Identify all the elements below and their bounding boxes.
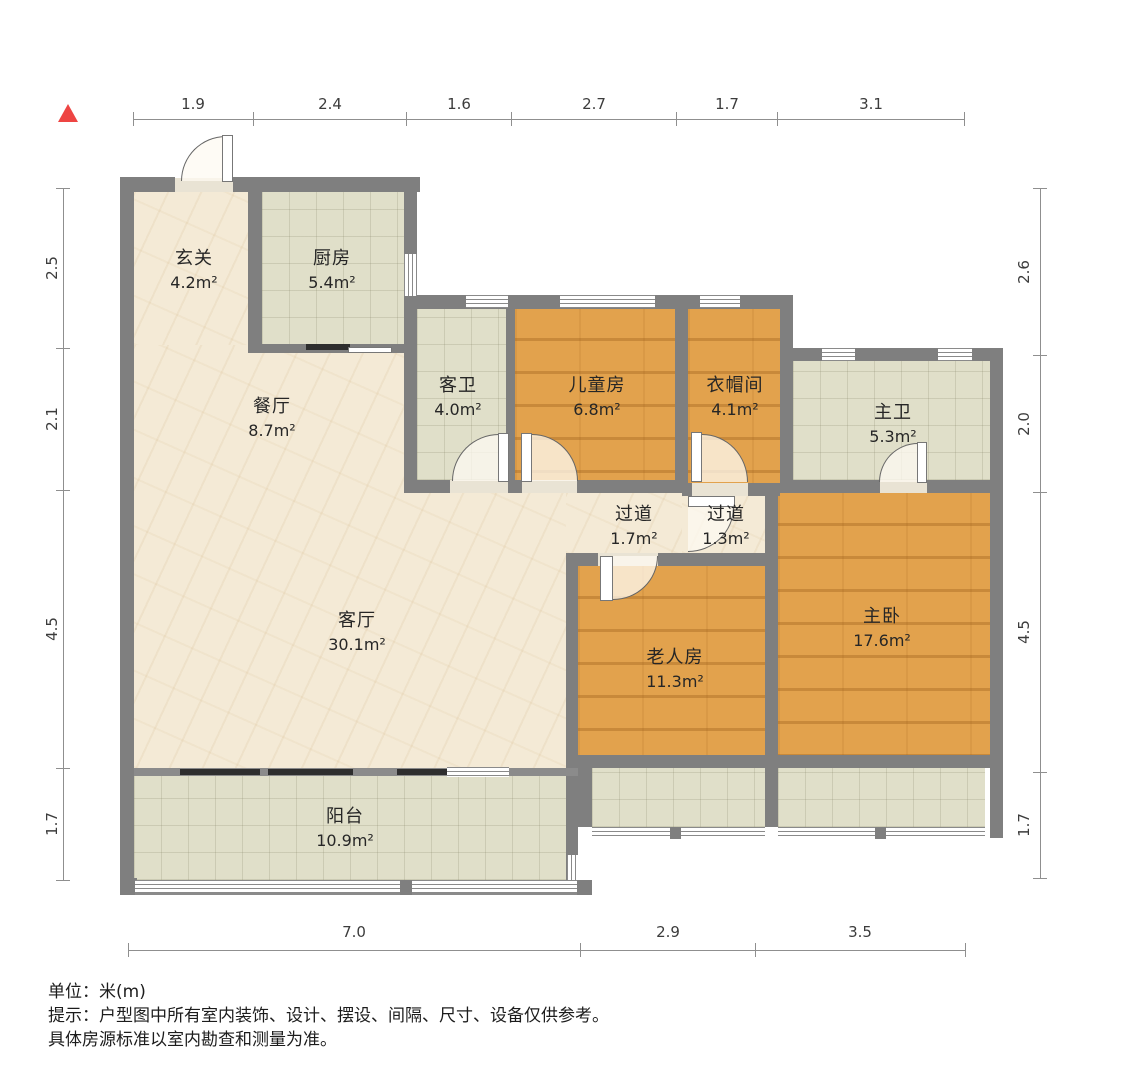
window xyxy=(822,348,855,361)
dim-label-left-4: 1.7 xyxy=(43,812,61,836)
wall xyxy=(682,483,692,496)
room-name: 餐厅 xyxy=(248,392,295,418)
dim-label-top-3: 1.6 xyxy=(447,95,471,113)
railing xyxy=(778,827,875,839)
floor-ledge-right xyxy=(778,768,985,827)
wall xyxy=(233,177,420,192)
dim-tick xyxy=(965,943,966,957)
dim-label-left-2: 2.1 xyxy=(43,407,61,431)
room-label-dining: 餐厅 8.7m² xyxy=(248,392,295,440)
dim-tick xyxy=(1033,355,1047,356)
window xyxy=(466,295,508,308)
dim-label-top-1: 1.9 xyxy=(181,95,205,113)
door-leaf-entry xyxy=(222,135,233,182)
wall xyxy=(577,480,682,493)
dim-tick xyxy=(1033,188,1047,189)
room-name: 厨房 xyxy=(308,244,355,270)
room-area: 10.9m² xyxy=(316,831,374,850)
balcony-railing xyxy=(135,880,400,895)
wall xyxy=(927,480,1003,493)
dim-tick xyxy=(755,943,756,957)
wall xyxy=(780,480,880,493)
room-name: 过道 xyxy=(702,500,749,526)
room-label-corridor-a: 过道 1.7m² xyxy=(610,500,657,548)
wall xyxy=(120,177,134,895)
dim-label-top-2: 2.4 xyxy=(318,95,342,113)
dim-label-top-5: 1.7 xyxy=(715,95,739,113)
wall xyxy=(658,553,778,566)
wall xyxy=(875,827,886,839)
dim-tick xyxy=(128,943,129,957)
dim-label-bottom-1: 7.0 xyxy=(342,923,366,941)
wall xyxy=(765,768,778,827)
room-area: 5.4m² xyxy=(308,273,355,292)
dim-tick xyxy=(133,112,134,126)
room-area: 6.8m² xyxy=(569,400,626,419)
room-name: 过道 xyxy=(610,500,657,526)
room-name: 主卫 xyxy=(869,398,916,424)
dim-tick xyxy=(56,768,70,769)
room-name: 老人房 xyxy=(646,643,704,669)
dim-tick xyxy=(56,188,70,189)
wall xyxy=(577,880,592,895)
dimension-line-right xyxy=(1040,188,1041,878)
dim-tick xyxy=(676,112,677,126)
wall xyxy=(578,768,592,827)
sliding-door-panel xyxy=(397,769,447,775)
dim-tick xyxy=(1033,772,1047,773)
dim-label-top-4: 2.7 xyxy=(582,95,606,113)
room-name: 阳台 xyxy=(316,802,374,828)
door-leaf-cloakroom xyxy=(691,432,702,482)
dim-tick xyxy=(1033,492,1047,493)
wall xyxy=(404,480,450,493)
window xyxy=(700,295,740,308)
room-name: 衣帽间 xyxy=(707,371,764,397)
dim-label-bottom-2: 2.9 xyxy=(656,923,680,941)
dim-tick xyxy=(1033,878,1047,879)
sliding-door-panel xyxy=(348,347,392,353)
wall xyxy=(508,480,522,493)
dim-label-right-3: 4.5 xyxy=(1015,620,1033,644)
dim-tick xyxy=(511,112,512,126)
dim-tick xyxy=(253,112,254,126)
footer-unit: 单位：米(m) xyxy=(48,980,609,1004)
room-name: 客厅 xyxy=(328,606,386,632)
wall xyxy=(675,308,688,483)
sliding-door-panel xyxy=(306,344,350,350)
room-label-master-bedroom: 主卧 17.6m² xyxy=(853,602,911,650)
room-label-entry-hall: 玄关 4.2m² xyxy=(170,244,217,292)
railing xyxy=(681,827,765,839)
sliding-door-panel xyxy=(268,769,353,775)
dim-label-right-2: 2.0 xyxy=(1015,412,1033,436)
floor-ledge-left xyxy=(592,768,765,827)
room-label-cloakroom: 衣帽间 4.1m² xyxy=(707,371,764,419)
room-label-elder-room: 老人房 11.3m² xyxy=(646,643,704,691)
balcony-railing xyxy=(412,880,577,895)
wall xyxy=(400,880,412,895)
window xyxy=(938,348,972,361)
room-area: 1.7m² xyxy=(610,529,657,548)
door-leaf-elder-room xyxy=(600,556,613,601)
dim-tick xyxy=(964,112,965,126)
room-label-master-bath: 主卫 5.3m² xyxy=(869,398,916,446)
window xyxy=(560,295,655,308)
dim-label-left-1: 2.5 xyxy=(43,256,61,280)
room-name: 主卧 xyxy=(853,602,911,628)
dimension-line-top xyxy=(133,119,964,120)
room-name: 玄关 xyxy=(170,244,217,270)
footer-notes: 单位：米(m) 提示：户型图中所有室内装饰、设计、摆设、间隔、尺寸、设备仅供参考… xyxy=(48,980,609,1052)
dim-tick xyxy=(580,943,581,957)
room-area: 17.6m² xyxy=(853,631,911,650)
room-name: 儿童房 xyxy=(569,371,626,397)
wall xyxy=(404,192,417,480)
door-leaf-master-bath xyxy=(917,442,927,483)
room-label-living-room: 客厅 30.1m² xyxy=(328,606,386,654)
wall xyxy=(578,755,1003,768)
wall xyxy=(248,192,262,345)
window xyxy=(447,767,509,777)
dimension-line-left xyxy=(63,188,64,880)
room-name: 客卫 xyxy=(434,371,481,397)
window xyxy=(567,855,578,880)
railing xyxy=(592,827,670,839)
dim-label-left-3: 4.5 xyxy=(43,617,61,641)
wall xyxy=(670,827,681,839)
room-area: 4.1m² xyxy=(707,400,764,419)
wall xyxy=(566,553,578,768)
dim-tick xyxy=(56,348,70,349)
room-label-guest-bath: 客卫 4.0m² xyxy=(434,371,481,419)
dim-tick xyxy=(406,112,407,126)
room-area: 5.3m² xyxy=(869,427,916,446)
dimension-line-bottom xyxy=(128,950,965,951)
door-swing-entry xyxy=(181,136,226,181)
room-area: 4.2m² xyxy=(170,273,217,292)
room-area: 4.0m² xyxy=(434,400,481,419)
room-area: 30.1m² xyxy=(328,635,386,654)
dim-label-top-6: 3.1 xyxy=(859,95,883,113)
dim-tick xyxy=(56,880,70,881)
room-label-kitchen: 厨房 5.4m² xyxy=(308,244,355,292)
footer-tip-line2: 具体房源标准以室内勘查和测量为准。 xyxy=(48,1028,609,1052)
railing xyxy=(886,827,985,839)
room-area: 1.3m² xyxy=(702,529,749,548)
north-arrow-icon xyxy=(58,104,78,122)
room-area: 8.7m² xyxy=(248,421,295,440)
door-threshold xyxy=(692,483,748,496)
room-label-corridor-b: 过道 1.3m² xyxy=(702,500,749,548)
door-leaf-guest-bath xyxy=(498,433,509,482)
room-label-kids-room: 儿童房 6.8m² xyxy=(569,371,626,419)
window xyxy=(404,254,417,296)
floor-plan: 玄关 4.2m² 厨房 5.4m² 餐厅 8.7m² 客卫 4.0m² 儿童房 … xyxy=(0,0,1125,1073)
dim-label-right-1: 2.6 xyxy=(1015,260,1033,284)
dim-tick xyxy=(56,490,70,491)
dim-label-right-4: 1.7 xyxy=(1015,813,1033,837)
dim-label-bottom-3: 3.5 xyxy=(848,923,872,941)
sliding-door-panel xyxy=(180,769,260,775)
room-area: 11.3m² xyxy=(646,672,704,691)
room-label-balcony: 阳台 10.9m² xyxy=(316,802,374,850)
footer-tip-line1: 提示：户型图中所有室内装饰、设计、摆设、间隔、尺寸、设备仅供参考。 xyxy=(48,1004,609,1028)
wall xyxy=(780,295,793,483)
door-leaf-kids-room xyxy=(521,433,532,482)
wall xyxy=(765,566,778,768)
dim-tick xyxy=(777,112,778,126)
